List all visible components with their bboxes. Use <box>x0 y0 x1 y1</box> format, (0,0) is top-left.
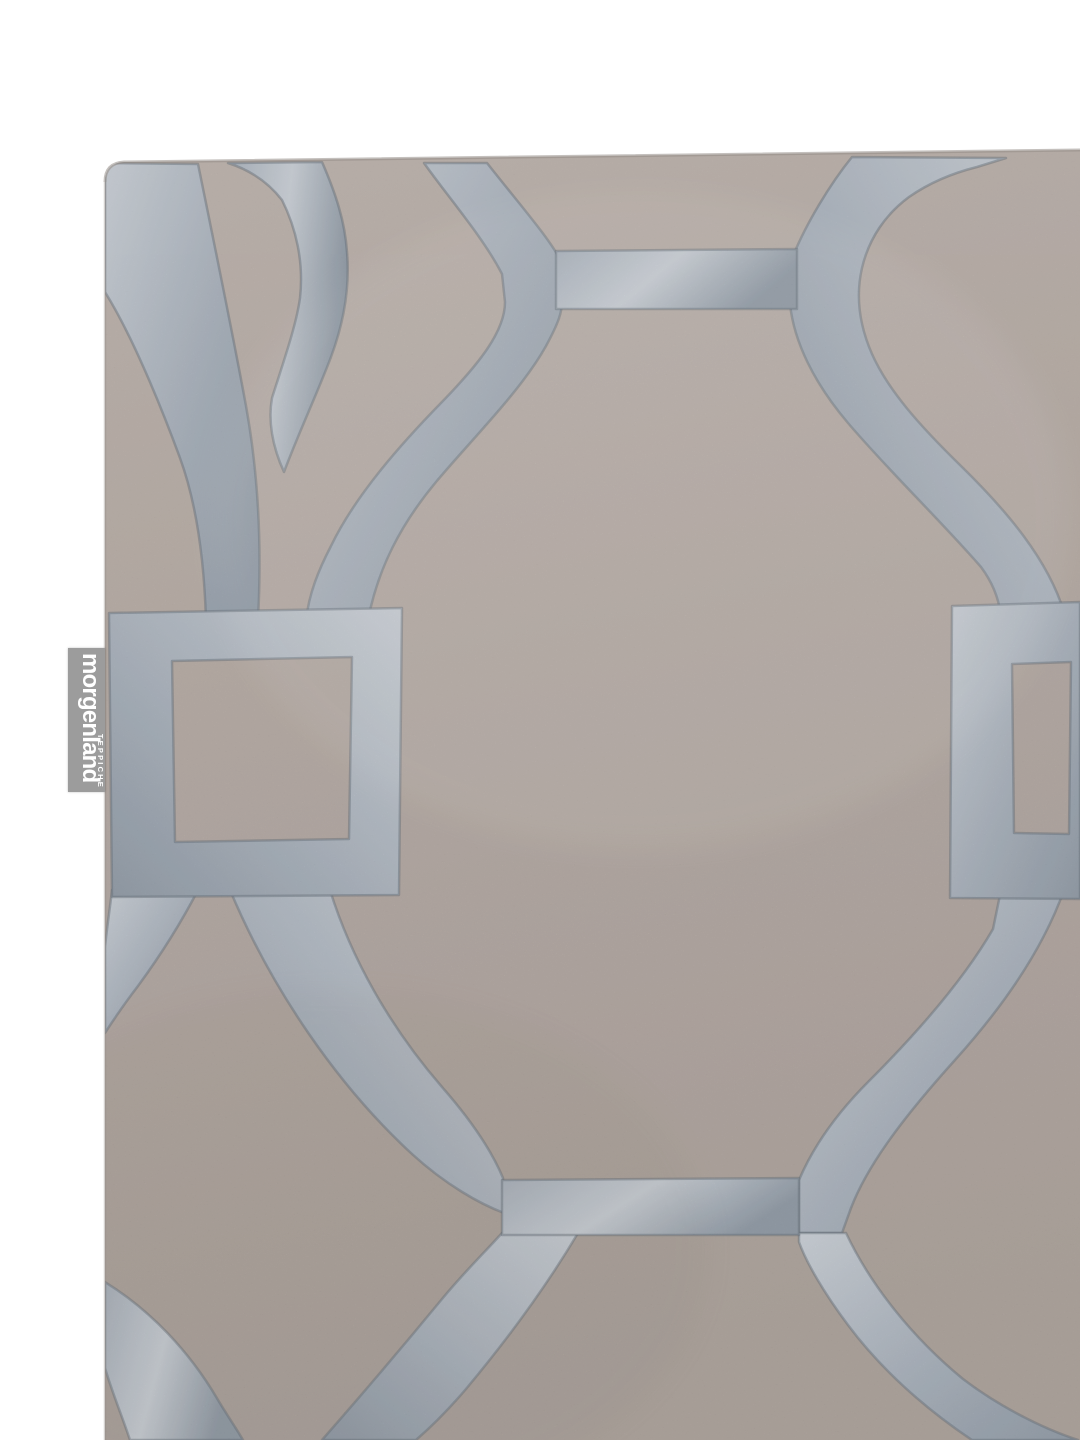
rug-image <box>0 0 1080 1440</box>
brand-label-rotated-text: morgenland TEPPICHE <box>68 648 105 792</box>
brand-subtitle: TEPPICHE <box>97 734 105 789</box>
product-photo: morgenland TEPPICHE <box>0 0 1080 1440</box>
brand-label: morgenland TEPPICHE <box>68 648 105 792</box>
pile-texture-light <box>0 0 1080 1440</box>
